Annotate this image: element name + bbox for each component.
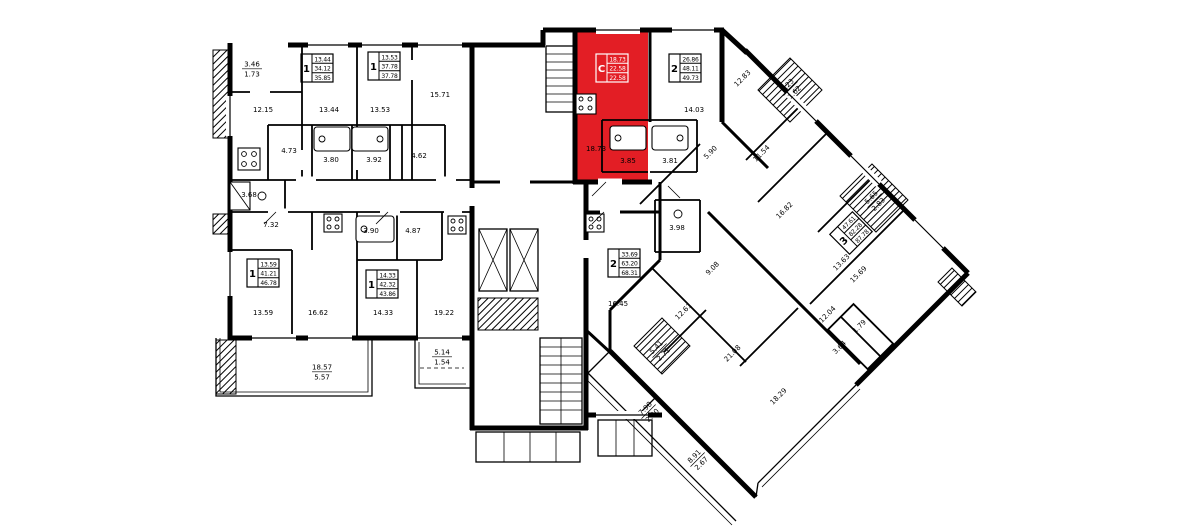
room-area-label: 12.83 — [733, 69, 753, 89]
sink-icon — [674, 210, 682, 218]
svg-text:5.90: 5.90 — [702, 144, 719, 161]
svg-text:13.53: 13.53 — [381, 54, 398, 61]
room-area-label: 13.59 — [253, 309, 273, 317]
svg-text:15.69: 15.69 — [849, 265, 869, 285]
svg-text:3.90: 3.90 — [363, 227, 379, 235]
svg-text:13.59: 13.59 — [260, 261, 277, 268]
svg-text:18.73: 18.73 — [609, 56, 626, 63]
svg-text:33.69: 33.69 — [621, 251, 638, 258]
svg-text:41.21: 41.21 — [260, 271, 277, 278]
apartment-stamp: 114.3342.3243.86 — [366, 270, 398, 298]
room-area-label: 18.73 — [586, 145, 606, 153]
entrance-porch — [476, 432, 580, 462]
stove-icon — [238, 148, 260, 170]
svg-text:13.59: 13.59 — [253, 309, 273, 317]
balcony-area-label: 5.141.54 — [432, 349, 452, 367]
room-area-label: 12.15 — [253, 106, 273, 114]
vent-shaft-hatch — [478, 298, 538, 330]
apartment-stamp: 113.4434.1235.85 — [301, 54, 333, 82]
room-area-label: 15.71 — [430, 91, 450, 99]
room-area-label: 13.53 — [370, 106, 390, 114]
svg-text:16.82: 16.82 — [775, 201, 795, 221]
elevator-cross — [479, 229, 507, 291]
svg-text:13.63: 13.63 — [832, 253, 852, 273]
room-area-label: 7.32 — [263, 221, 279, 229]
apartment-stamp: 226.8648.1149.73 — [669, 54, 701, 82]
svg-text:48.11: 48.11 — [682, 66, 699, 73]
svg-text:3: 3 — [838, 235, 851, 248]
stair-treads-upper — [546, 54, 574, 102]
room-area-label: 13.44 — [319, 106, 340, 114]
labels-layer: 3.461.7312.1513.4413.5315.714.733.803.92… — [241, 61, 888, 474]
balcony-hatch-top-left — [213, 50, 228, 138]
room-area-label: 4.73 — [281, 147, 297, 155]
balcony-area-label: 18.575.57 — [312, 364, 332, 382]
floor-plan-canvas: 113.4434.1235.85113.5337.7837.78С18.7322… — [0, 0, 1184, 529]
room-area-label: 15.69 — [849, 265, 869, 285]
elevator-cross-2 — [510, 229, 538, 291]
room-area-label: 3.90 — [363, 227, 379, 235]
room-area-label: 3.81 — [662, 157, 678, 165]
core-layer — [478, 46, 582, 424]
svg-text:4.87: 4.87 — [405, 227, 421, 235]
stove-icon — [448, 216, 466, 234]
svg-text:63.20: 63.20 — [621, 261, 638, 268]
balcony-hatch-bottom-left — [216, 340, 236, 394]
svg-text:1.73: 1.73 — [244, 71, 260, 79]
stove-icon — [586, 214, 604, 232]
room-area-label: 9.08 — [704, 260, 721, 277]
entrance-porch-2 — [598, 420, 652, 456]
room-area-label: 18.29 — [769, 387, 789, 407]
svg-text:22.58: 22.58 — [609, 75, 626, 82]
svg-text:2: 2 — [671, 64, 678, 75]
svg-text:3.68: 3.68 — [241, 191, 257, 199]
svg-text:3.81: 3.81 — [662, 157, 678, 165]
stair-treads — [540, 338, 582, 424]
stove-icon-studio — [576, 94, 596, 114]
room-area-label: 3.85 — [620, 157, 636, 165]
svg-text:3.46: 3.46 — [244, 61, 260, 69]
svg-text:19.22: 19.22 — [434, 309, 454, 317]
svg-text:16.45: 16.45 — [608, 300, 628, 308]
svg-text:14.03: 14.03 — [684, 106, 704, 114]
room-area-label: 3.92 — [366, 156, 382, 164]
svg-text:С: С — [598, 64, 605, 75]
room-area-label: 13.63 — [832, 253, 852, 273]
svg-text:4.73: 4.73 — [281, 147, 297, 155]
svg-text:1.79: 1.79 — [851, 318, 868, 335]
svg-text:14.33: 14.33 — [379, 272, 396, 279]
svg-text:42.32: 42.32 — [379, 282, 396, 289]
apartment-stamp: 113.5941.2146.78 — [247, 259, 279, 287]
apartment-stamp: 113.5337.7837.78 — [368, 52, 400, 80]
room-area-label: 12.61 — [674, 302, 694, 322]
room-area-label: 16.45 — [608, 300, 628, 308]
svg-text:37.78: 37.78 — [381, 64, 398, 71]
room-area-label: 14.33 — [373, 309, 393, 317]
room-area-label: 4.62 — [411, 152, 427, 160]
svg-text:13.44: 13.44 — [319, 106, 340, 114]
svg-text:15.71: 15.71 — [430, 91, 450, 99]
apartment-stamp: 233.6963.2068.31 — [608, 249, 640, 277]
balcony-hatch-left-mid — [213, 214, 228, 234]
svg-text:1: 1 — [303, 64, 310, 75]
svg-text:3.80: 3.80 — [323, 156, 339, 164]
svg-text:3.85: 3.85 — [620, 157, 636, 165]
svg-text:21.08: 21.08 — [723, 344, 743, 364]
svg-text:1: 1 — [368, 280, 375, 291]
floor-plan-svg: 113.4434.1235.85113.5337.7837.78С18.7322… — [0, 0, 1184, 529]
room-area-label: 14.03 — [684, 106, 704, 114]
room-area-label: 3.68 — [241, 191, 257, 199]
wing-balcony-rail — [588, 351, 736, 521]
balcony-rail-bottom-inner — [220, 338, 368, 392]
porch-steps-2 — [616, 420, 634, 456]
svg-text:5.57: 5.57 — [314, 374, 330, 382]
svg-text:49.73: 49.73 — [682, 75, 699, 82]
room-area-label: 5.90 — [702, 144, 719, 161]
stove-icon — [324, 214, 342, 232]
svg-text:12.83: 12.83 — [733, 69, 753, 89]
porch-steps — [504, 432, 556, 462]
svg-text:3.92: 3.92 — [366, 156, 382, 164]
room-area-label: 16.82 — [775, 201, 795, 221]
room-area-label: 3.98 — [669, 224, 685, 232]
svg-text:5.14: 5.14 — [434, 349, 450, 357]
room-area-label: 4.87 — [405, 227, 421, 235]
svg-text:2: 2 — [610, 259, 617, 270]
svg-text:34.12: 34.12 — [314, 66, 331, 73]
svg-text:1.54: 1.54 — [434, 359, 450, 367]
svg-text:1: 1 — [249, 269, 256, 280]
room-area-label: 16.62 — [308, 309, 328, 317]
svg-text:22.58: 22.58 — [609, 66, 626, 73]
svg-text:37.78: 37.78 — [381, 73, 398, 80]
sink-icon — [258, 192, 266, 200]
svg-text:18.57: 18.57 — [312, 364, 332, 372]
svg-text:14.33: 14.33 — [373, 309, 393, 317]
svg-text:9.08: 9.08 — [704, 260, 721, 277]
svg-text:12.15: 12.15 — [253, 106, 273, 114]
svg-text:43.86: 43.86 — [379, 291, 396, 298]
balcony-rail-bottom — [216, 338, 372, 396]
svg-text:68.31: 68.31 — [621, 270, 638, 277]
room-area-label: 19.22 — [434, 309, 454, 317]
room-area-label: 21.08 — [723, 344, 743, 364]
svg-text:3.98: 3.98 — [669, 224, 685, 232]
svg-text:35.85: 35.85 — [314, 75, 331, 82]
svg-text:13.53: 13.53 — [370, 106, 390, 114]
svg-text:16.62: 16.62 — [308, 309, 328, 317]
svg-text:13.44: 13.44 — [314, 56, 331, 63]
svg-text:7.32: 7.32 — [263, 221, 279, 229]
svg-text:18.73: 18.73 — [586, 145, 606, 153]
svg-text:1: 1 — [370, 62, 377, 73]
svg-text:46.78: 46.78 — [260, 280, 277, 287]
balcony-area-label: 3.461.73 — [242, 61, 262, 79]
room-area-label: 1.79 — [851, 318, 868, 335]
svg-text:18.29: 18.29 — [769, 387, 789, 407]
svg-text:26.86: 26.86 — [682, 56, 699, 63]
svg-text:4.62: 4.62 — [411, 152, 427, 160]
room-area-label: 3.80 — [323, 156, 339, 164]
door-gaps — [250, 60, 622, 258]
svg-text:12.61: 12.61 — [674, 302, 694, 322]
